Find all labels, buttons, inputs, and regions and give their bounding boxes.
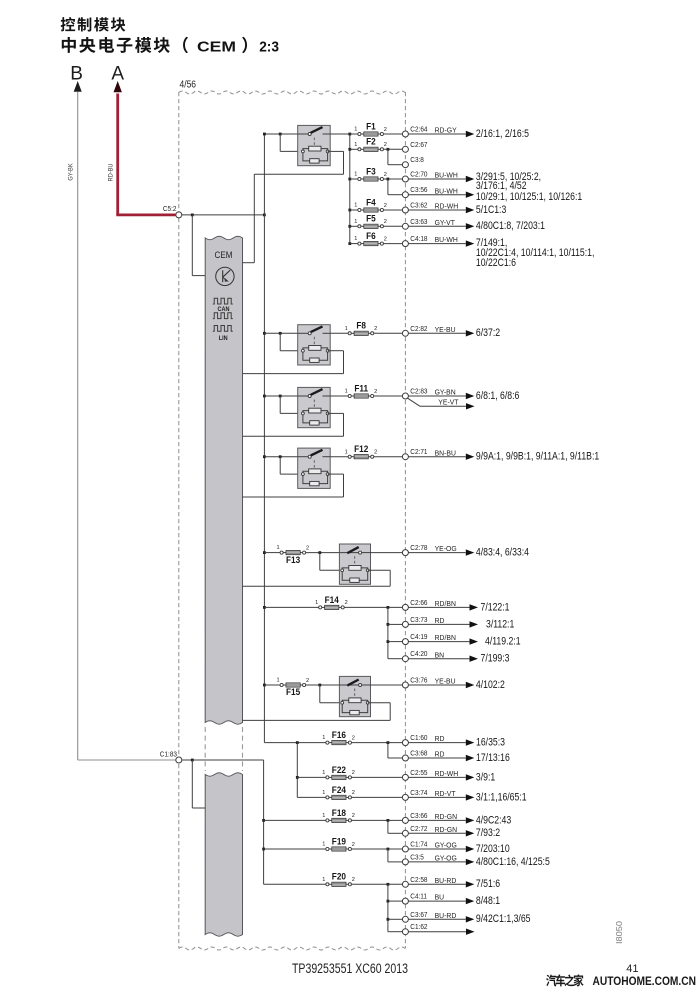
svg-text:I8050: I8050	[614, 921, 624, 944]
svg-text:9/42C1:1,3/65: 9/42C1:1,3/65	[476, 913, 531, 925]
svg-text:C1:83: C1:83	[160, 751, 177, 758]
svg-text:C4:19: C4:19	[410, 634, 427, 641]
svg-text:1: 1	[322, 770, 325, 776]
svg-text:1: 1	[354, 142, 357, 148]
svg-text:F15: F15	[286, 687, 300, 697]
svg-text:2: 2	[384, 203, 387, 209]
svg-text:2: 2	[352, 877, 355, 883]
svg-text:16/35:3: 16/35:3	[476, 737, 505, 749]
svg-text:C2:58: C2:58	[410, 877, 427, 884]
svg-text:1: 1	[354, 219, 357, 225]
svg-text:F22: F22	[332, 765, 346, 775]
svg-text:3/1:1,16/65:1: 3/1:1,16/65:1	[476, 791, 527, 803]
svg-text:RD: RD	[435, 752, 445, 759]
svg-text:F14: F14	[325, 595, 340, 605]
svg-text:2: 2	[306, 678, 309, 684]
svg-text:2: 2	[384, 142, 387, 148]
svg-text:6/37:2: 6/37:2	[476, 327, 500, 339]
svg-text:4/56: 4/56	[180, 80, 197, 91]
svg-text:1: 1	[276, 678, 279, 684]
svg-text:C2:72: C2:72	[410, 826, 427, 833]
svg-text:C4:18: C4:18	[410, 236, 427, 243]
svg-text:YE-BU: YE-BU	[435, 679, 456, 686]
svg-text:F18: F18	[332, 808, 346, 818]
svg-text:F13: F13	[286, 555, 300, 565]
svg-text:2: 2	[352, 790, 355, 796]
svg-text:F8: F8	[356, 321, 366, 331]
svg-text:F11: F11	[354, 383, 368, 393]
svg-text:4/102:2: 4/102:2	[476, 679, 505, 691]
svg-text:7/203:10: 7/203:10	[476, 843, 510, 855]
svg-text:LIN: LIN	[219, 335, 228, 342]
svg-text:BU: BU	[435, 895, 445, 902]
svg-text:3/9:1: 3/9:1	[476, 771, 495, 783]
svg-text:2: 2	[374, 326, 377, 332]
svg-text:F16: F16	[332, 730, 346, 740]
svg-text:RD-WH: RD-WH	[435, 204, 459, 211]
svg-text:C2:66: C2:66	[410, 600, 427, 607]
svg-text:1: 1	[354, 127, 357, 133]
svg-text:1: 1	[322, 735, 325, 741]
svg-text:C3:8: C3:8	[410, 157, 424, 164]
svg-text:1: 1	[322, 877, 325, 883]
svg-text:1: 1	[276, 545, 279, 551]
svg-text:RD-GN: RD-GN	[435, 814, 458, 821]
svg-text:CEM: CEM	[197, 38, 236, 55]
svg-text:TP39253551 XC60 2013: TP39253551 XC60 2013	[292, 961, 408, 976]
svg-text:3/112:1: 3/112:1	[486, 618, 514, 630]
svg-text:2: 2	[345, 600, 348, 606]
svg-text:RD: RD	[435, 736, 445, 743]
svg-text:7/199:3: 7/199:3	[481, 653, 510, 665]
svg-text:C2:67: C2:67	[410, 142, 427, 149]
svg-text:1: 1	[345, 449, 348, 455]
svg-text:2: 2	[352, 842, 355, 848]
svg-text:1: 1	[315, 600, 318, 606]
svg-text:C3:56: C3:56	[410, 187, 427, 194]
svg-text:BU-RD: BU-RD	[435, 913, 457, 920]
svg-text:C2:55: C2:55	[410, 770, 427, 777]
svg-text:C3:63: C3:63	[410, 219, 427, 226]
svg-text:1: 1	[345, 389, 348, 395]
svg-text:C1:74: C1:74	[410, 842, 427, 849]
svg-text:GY-VT: GY-VT	[435, 220, 456, 227]
svg-text:8/48:1: 8/48:1	[476, 895, 500, 907]
svg-text:C3:62: C3:62	[410, 203, 427, 210]
svg-text:7/122:1: 7/122:1	[481, 601, 510, 613]
svg-text:C2:82: C2:82	[410, 326, 427, 333]
svg-text:5/1C1:3: 5/1C1:3	[476, 204, 506, 216]
svg-text:C3:76: C3:76	[410, 678, 427, 685]
svg-text:2: 2	[352, 735, 355, 741]
svg-text:2: 2	[384, 219, 387, 225]
svg-text:4/80C1:16, 4/125:5: 4/80C1:16, 4/125:5	[476, 856, 550, 868]
svg-text:C2:83: C2:83	[410, 389, 427, 396]
svg-text:C4:11: C4:11	[410, 894, 427, 901]
svg-text:2: 2	[352, 770, 355, 776]
svg-text:4/83:4, 6/33:4: 4/83:4, 6/33:4	[476, 547, 529, 559]
svg-text:C3:67: C3:67	[410, 912, 427, 919]
svg-text:GY-BN: GY-BN	[435, 390, 456, 397]
svg-text:1: 1	[354, 172, 357, 178]
svg-text:2: 2	[306, 545, 309, 551]
svg-text:F5: F5	[366, 214, 376, 224]
svg-text:F24: F24	[332, 785, 347, 795]
svg-text:C3:66: C3:66	[410, 813, 427, 820]
svg-text:C4:20: C4:20	[410, 651, 427, 658]
svg-text:17/13:16: 17/13:16	[476, 752, 510, 764]
svg-text:4/9C2:43: 4/9C2:43	[476, 814, 511, 826]
svg-text:RD-GN: RD-GN	[435, 827, 458, 834]
svg-text:RD: RD	[435, 618, 445, 625]
svg-text:F6: F6	[366, 231, 376, 241]
svg-text:F12: F12	[354, 444, 368, 454]
svg-text:C1:60: C1:60	[410, 735, 427, 742]
svg-text:C3:68: C3:68	[410, 751, 427, 758]
svg-text:A: A	[111, 64, 124, 85]
svg-text:GY-BK: GY-BK	[67, 163, 74, 181]
svg-text:1: 1	[322, 813, 325, 819]
svg-text:BU-WH: BU-WH	[435, 188, 458, 195]
svg-text:RD/BN: RD/BN	[435, 635, 456, 642]
svg-text:9/9A:1, 9/9B:1, 9/11A:1, 9/11B: 9/9A:1, 9/9B:1, 9/11A:1, 9/11B:1	[476, 451, 599, 463]
svg-text:C3:73: C3:73	[410, 617, 427, 624]
svg-text:2: 2	[384, 236, 387, 242]
svg-text:GY-OG: GY-OG	[435, 856, 457, 863]
svg-text:RD/BN: RD/BN	[435, 601, 456, 608]
svg-text:C1:62: C1:62	[410, 924, 427, 931]
svg-text:10/22C1:6: 10/22C1:6	[476, 257, 516, 269]
svg-text:BN: BN	[435, 652, 445, 659]
svg-text:10/29:1, 10/125:1, 10/126:1: 10/29:1, 10/125:1, 10/126:1	[476, 191, 582, 203]
svg-text:2: 2	[374, 450, 377, 456]
svg-text:BN-BU: BN-BU	[435, 450, 456, 457]
svg-text:GY-OG: GY-OG	[435, 843, 457, 850]
svg-text:1: 1	[322, 842, 325, 848]
svg-text:YE-VT: YE-VT	[438, 400, 459, 407]
svg-text:B: B	[70, 64, 83, 85]
svg-text:RD-VT: RD-VT	[435, 791, 457, 798]
svg-text:F19: F19	[332, 836, 346, 846]
svg-text:CAN: CAN	[218, 306, 230, 313]
svg-text:2:3: 2:3	[259, 38, 279, 55]
svg-text:YE-BU: YE-BU	[435, 327, 456, 334]
svg-text:C3:74: C3:74	[410, 790, 427, 797]
svg-text:1: 1	[345, 326, 348, 332]
svg-text:2: 2	[374, 389, 377, 395]
svg-text:YE-OG: YE-OG	[435, 546, 457, 553]
svg-text:F4: F4	[366, 197, 376, 207]
svg-text:BU-WH: BU-WH	[435, 237, 458, 244]
svg-text:7/51:6: 7/51:6	[476, 878, 500, 890]
svg-text:C2:64: C2:64	[410, 127, 427, 134]
svg-text:C3:5: C3:5	[410, 854, 424, 861]
svg-text:AUTOHOME.COM.CN: AUTOHOME.COM.CN	[593, 974, 697, 988]
svg-text:2: 2	[384, 127, 387, 133]
svg-text:C5:2: C5:2	[163, 206, 177, 213]
svg-text:1: 1	[322, 790, 325, 796]
svg-text:F1: F1	[366, 121, 376, 131]
svg-text:C2:70: C2:70	[410, 172, 427, 179]
svg-text:RD-BU: RD-BU	[107, 163, 114, 181]
svg-text:RD-WH: RD-WH	[435, 771, 459, 778]
svg-text:CEM: CEM	[215, 250, 233, 261]
svg-text:7/93:2: 7/93:2	[476, 827, 500, 839]
svg-text:C2:71: C2:71	[410, 449, 427, 456]
svg-text:F3: F3	[366, 166, 376, 176]
svg-text:BU-WH: BU-WH	[435, 173, 458, 180]
svg-text:4/80C1:8, 7/203:1: 4/80C1:8, 7/203:1	[476, 220, 545, 232]
svg-text:2/16:1, 2/16:5: 2/16:1, 2/16:5	[476, 128, 529, 140]
svg-text:F20: F20	[332, 872, 346, 882]
svg-text:C2:78: C2:78	[410, 545, 427, 552]
svg-text:4/119.2:1: 4/119.2:1	[485, 636, 521, 648]
svg-text:2: 2	[384, 172, 387, 178]
svg-text:1: 1	[354, 203, 357, 209]
svg-text:6/8:1, 6/8:6: 6/8:1, 6/8:6	[476, 390, 520, 402]
svg-text:F2: F2	[366, 137, 376, 147]
svg-text:RD-GY: RD-GY	[435, 128, 457, 135]
svg-text:2: 2	[352, 813, 355, 819]
svg-text:1: 1	[354, 236, 357, 242]
svg-text:BU-RD: BU-RD	[435, 878, 457, 885]
